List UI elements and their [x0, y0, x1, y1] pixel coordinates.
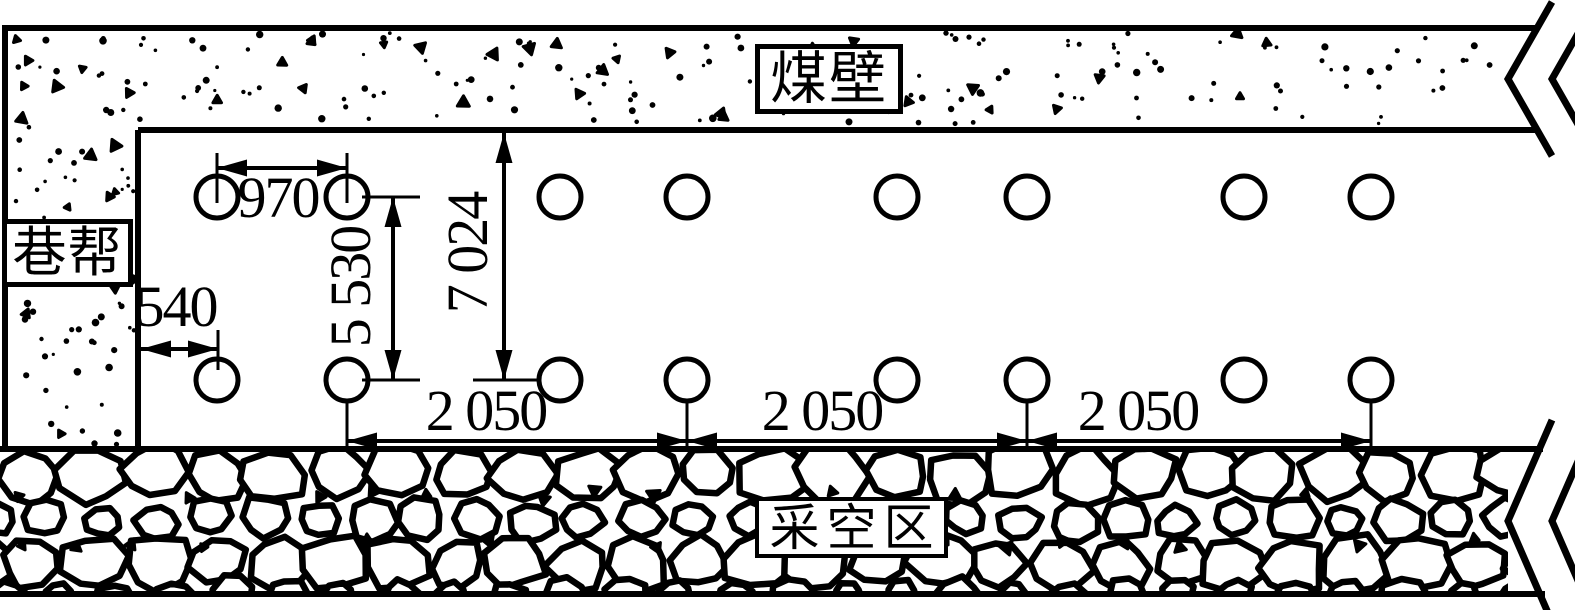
borehole: [876, 359, 918, 401]
borehole: [666, 359, 708, 401]
borehole: [326, 359, 368, 401]
dim-group-spacing-1: 2 050: [426, 382, 547, 440]
dim-group-spacing-3: 2 050: [1078, 382, 1199, 440]
coal-wall-label: 煤壁: [755, 44, 903, 114]
stipple-texture: [12, 28, 1492, 447]
dim-rib-offset-540: 540: [136, 278, 217, 336]
borehole: [539, 176, 581, 218]
dim-group-spacing-2: 2 050: [762, 382, 883, 440]
borehole-layout-diagram: 煤壁 巷帮 采空区 970 540 5 530 7 024 2 050 2 05…: [0, 0, 1575, 610]
dim-row-spacing-5530: 5 530: [322, 227, 380, 348]
borehole: [666, 176, 708, 218]
borehole: [1223, 359, 1265, 401]
borehole: [1006, 176, 1048, 218]
goaf-label: 采空区: [755, 497, 948, 558]
borehole: [1223, 176, 1265, 218]
borehole: [1350, 359, 1392, 401]
dim-hole-spacing-970: 970: [238, 169, 319, 227]
borehole: [1006, 359, 1048, 401]
borehole: [876, 176, 918, 218]
roadway-rib-label: 巷帮: [2, 219, 133, 287]
borehole: [1350, 176, 1392, 218]
dim-wall-to-row-7024: 7 024: [439, 193, 497, 314]
